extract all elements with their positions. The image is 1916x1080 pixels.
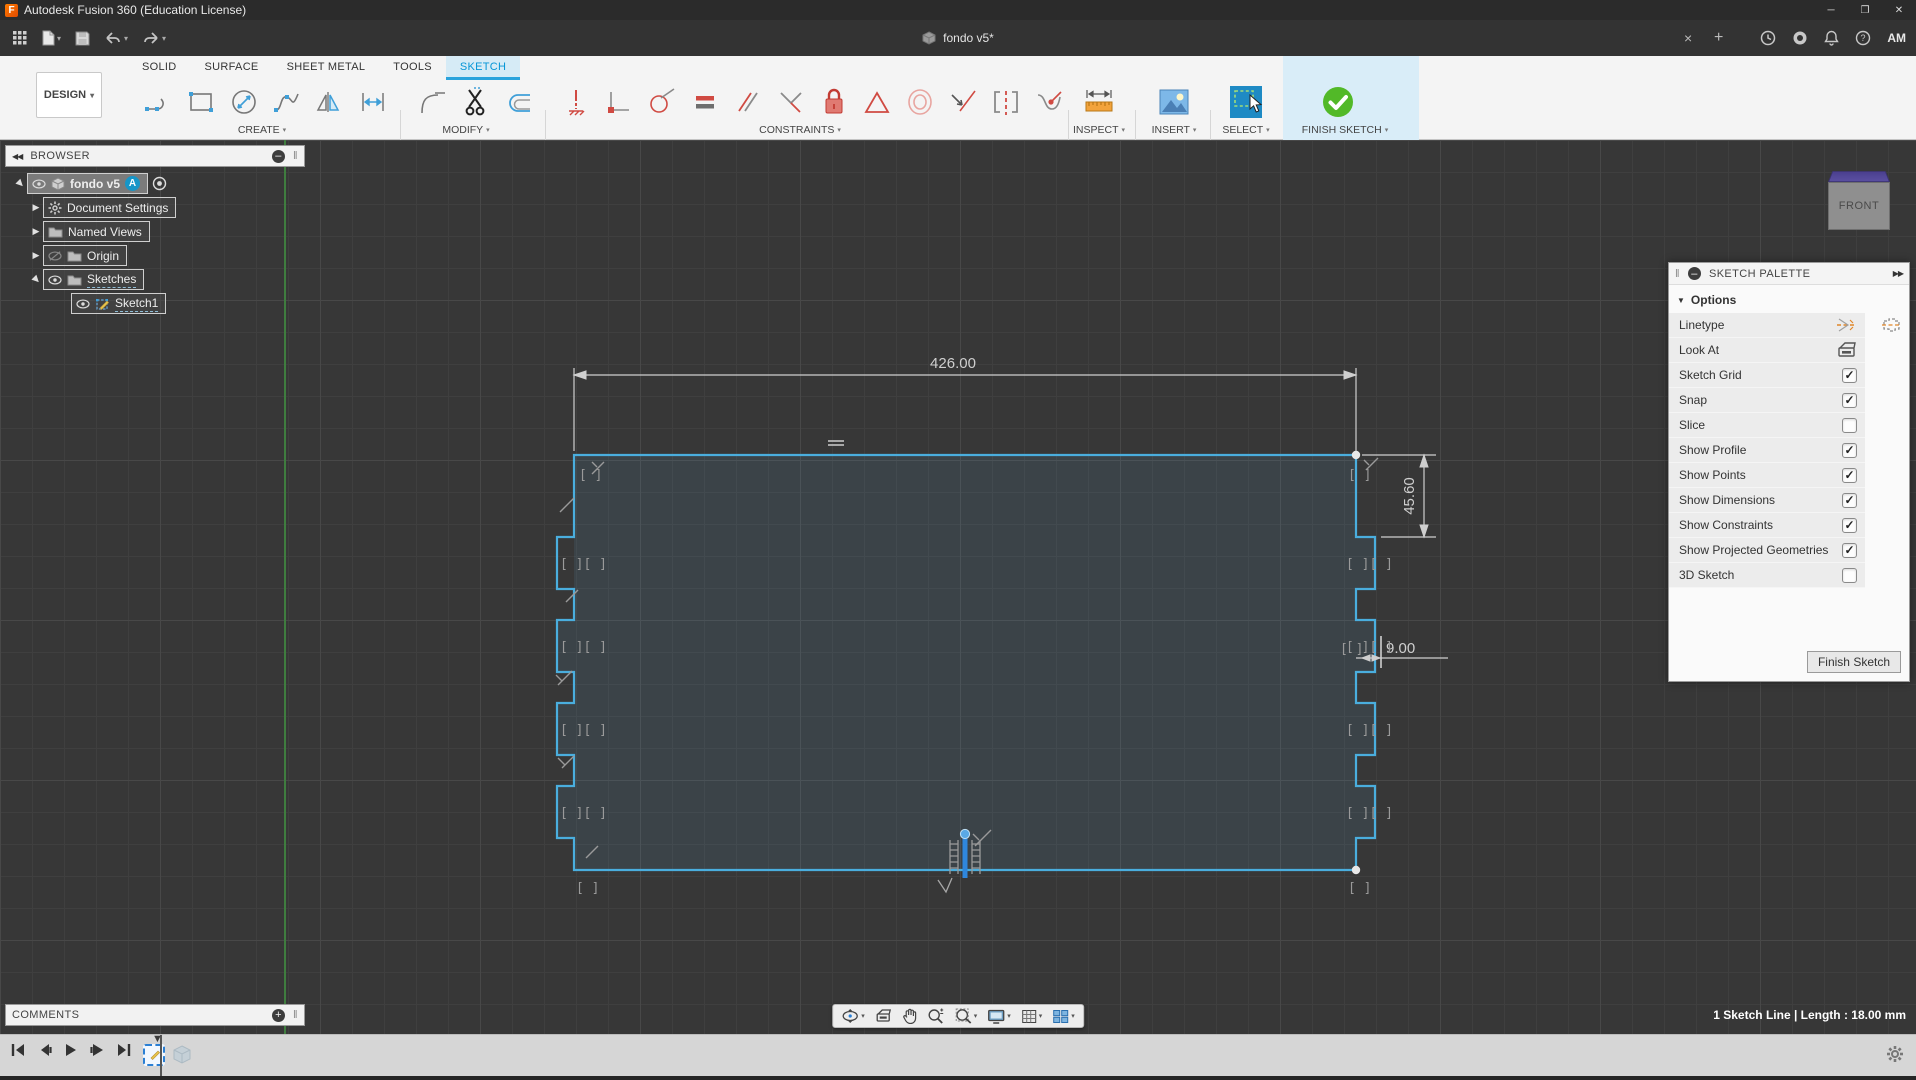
ribbon-tabs: SOLID SURFACE SHEET METAL TOOLS SKETCH <box>128 56 520 80</box>
browser-panel: ◀◀ BROWSER – ‖ ▶ fondo v5 A <box>5 145 305 317</box>
panel-grip[interactable]: ‖ <box>293 1009 298 1021</box>
tree-row-root[interactable]: ▶ fondo v5 A <box>5 173 305 194</box>
job-status-icon[interactable] <box>1760 30 1776 46</box>
show-projected-geometries-checkbox[interactable]: ✓ <box>1842 543 1857 558</box>
collapse-panel-icon[interactable]: ▶▶ <box>1893 269 1903 278</box>
tab-sheet-metal[interactable]: SHEET METAL <box>273 56 380 80</box>
palette-row-linetype: Linetype <box>1669 313 1865 338</box>
save-icon[interactable] <box>71 28 94 49</box>
expand-arrow-icon[interactable]: ▶ <box>33 226 40 237</box>
panel-display-toggle-icon[interactable]: – <box>1688 267 1701 280</box>
notification-bell-icon[interactable] <box>1824 30 1839 46</box>
tree-row-sketch1[interactable]: Sketch1 <box>5 293 305 314</box>
tree-item-label: Sketches <box>87 272 136 288</box>
dimension-height[interactable]: 45.60 <box>1362 455 1436 537</box>
document-tab-strip: ▾ ▾ ▾ fondo v5* × + <box>0 20 1916 56</box>
sketch-palette-header[interactable]: ‖ – SKETCH PALETTE ▶▶ <box>1669 263 1909 285</box>
panel-grip[interactable]: ‖ <box>293 150 298 162</box>
section-collapse-icon: ▼ <box>1677 296 1685 305</box>
bottom-edge-strip <box>0 1076 1916 1080</box>
tree-item-label: Sketch1 <box>115 296 158 312</box>
constraint-glyph[interactable]: [ ][ ] <box>560 557 607 572</box>
construction-linetype-icon[interactable] <box>1835 316 1857 334</box>
constraint-collinear-icon[interactable] <box>945 84 981 120</box>
sketch-grid-checkbox[interactable]: ✓ <box>1842 368 1857 383</box>
view-cube-front-face[interactable]: FRONT <box>1828 182 1890 230</box>
constraint-coincident-icon[interactable] <box>601 84 637 120</box>
show-profile-checkbox[interactable]: ✓ <box>1842 443 1857 458</box>
timeline-play-button[interactable] <box>64 1042 78 1058</box>
snap-checkbox[interactable]: ✓ <box>1842 393 1857 408</box>
constraint-perpendicular-icon[interactable] <box>773 84 809 120</box>
palette-row-slice: Slice ✓ <box>1669 413 1865 438</box>
constraint-glyph[interactable]: [ ][ ] <box>1346 806 1393 821</box>
document-tab-title: fondo v5* <box>943 31 994 45</box>
mirror-tool-icon[interactable] <box>312 84 348 120</box>
show-points-checkbox[interactable]: ✓ <box>1842 468 1857 483</box>
constraint-glyph[interactable]: [ ] <box>576 881 599 896</box>
document-tab[interactable]: fondo v5* <box>0 20 1916 56</box>
new-tab-icon[interactable]: + <box>1714 29 1723 47</box>
zoom-window-tool[interactable]: ▾ <box>954 1008 978 1024</box>
maximize-button[interactable]: ❐ <box>1848 0 1882 20</box>
timeline-step-forward-button[interactable] <box>90 1042 104 1058</box>
visibility-eye-icon[interactable] <box>32 178 46 190</box>
group-label-select[interactable]: SELECT▾ <box>1222 124 1269 136</box>
view-cube-top-face[interactable] <box>1828 171 1890 182</box>
tree-item-label: fondo v5 <box>70 177 120 191</box>
constraint-glyph[interactable]: [ ][ ] <box>560 806 607 821</box>
finish-sketch-icon[interactable] <box>1320 84 1356 120</box>
centerline-linetype-icon[interactable] <box>1881 316 1901 334</box>
timeline-go-to-start-button[interactable] <box>10 1042 26 1058</box>
constraint-glyph[interactable]: [ ][ ] <box>1346 723 1393 738</box>
line-tool-icon[interactable] <box>140 84 176 120</box>
palette-row-show-dimensions: Show Dimensions ✓ <box>1669 488 1865 513</box>
visibility-eye-icon[interactable] <box>76 298 90 310</box>
visibility-eye-icon[interactable] <box>48 274 62 286</box>
sketch-profile[interactable] <box>557 455 1375 870</box>
fusion-360-window: F Autodesk Fusion 360 (Education License… <box>0 0 1916 1080</box>
view-cube[interactable]: FRONT <box>1828 166 1890 236</box>
insert-image-icon[interactable] <box>1156 84 1192 120</box>
fillet-tool-icon[interactable] <box>415 84 451 120</box>
comments-panel: COMMENTS + ‖ <box>5 1004 305 1026</box>
browser-header[interactable]: ◀◀ BROWSER – ‖ <box>5 145 305 167</box>
user-avatar[interactable]: AM <box>1887 31 1906 45</box>
group-label-finish-sketch[interactable]: FINISH SKETCH▾ <box>1302 124 1388 136</box>
dropdown-caret[interactable]: ▾ <box>1071 1012 1075 1020</box>
tree-row-document-settings[interactable]: ▶ Document Settings <box>5 197 305 218</box>
sketch-point[interactable] <box>1352 451 1360 459</box>
expand-arrow-icon[interactable]: ▶ <box>33 250 40 261</box>
help-icon[interactable]: ? <box>1855 30 1871 46</box>
constraint-glyph[interactable]: [ ][ ] <box>1346 557 1393 572</box>
palette-row-show-constraints: Show Constraints ✓ <box>1669 513 1865 538</box>
show-dimensions-checkbox[interactable]: ✓ <box>1842 493 1857 508</box>
dropdown-caret[interactable]: ▾ <box>974 1012 978 1020</box>
spline-tool-icon[interactable] <box>269 84 305 120</box>
expand-arrow-icon[interactable]: ▶ <box>30 273 43 286</box>
component-cube-icon <box>51 177 65 191</box>
rectangle-tool-icon[interactable] <box>183 84 219 120</box>
tab-close-icon[interactable]: × <box>1684 30 1692 46</box>
close-button[interactable]: ✕ <box>1882 0 1916 20</box>
constraint-parallel-icon[interactable] <box>730 84 766 120</box>
tree-row-named-views[interactable]: ▶ Named Views <box>5 221 305 242</box>
show-constraints-checkbox[interactable]: ✓ <box>1842 518 1857 533</box>
file-menu-icon[interactable]: ▾ <box>38 27 65 49</box>
folder-icon <box>48 226 63 238</box>
minimize-button[interactable]: ─ <box>1814 0 1848 20</box>
hidden-eye-icon[interactable] <box>48 250 62 262</box>
undo-icon[interactable]: ▾ <box>100 28 132 48</box>
sketch-dimension-icon[interactable] <box>355 84 391 120</box>
dropdown-caret[interactable]: ▾ <box>1039 1012 1043 1020</box>
constraint-glyph[interactable]: [ ] <box>1340 642 1363 657</box>
panel-grip[interactable]: ‖ <box>1675 268 1680 280</box>
browser-title: BROWSER <box>30 150 90 162</box>
offset-tool-icon[interactable] <box>501 84 537 120</box>
constraint-curvature-icon[interactable] <box>1031 84 1067 120</box>
browser-tree: ▶ fondo v5 A ▶ Document Sett <box>5 173 305 314</box>
group-label-create[interactable]: CREATE▾ <box>238 124 286 136</box>
midpoint-mark <box>828 441 844 445</box>
app-grid-icon[interactable] <box>8 27 32 49</box>
constraint-midpoint-icon[interactable] <box>859 84 895 120</box>
palette-row-look-at: Look At <box>1669 338 1865 363</box>
redo-icon[interactable]: ▾ <box>138 28 170 48</box>
panel-display-toggle-icon[interactable]: – <box>272 150 285 163</box>
constraint-horizontal-vertical-icon[interactable] <box>558 84 594 120</box>
palette-row-snap: Snap ✓ <box>1669 388 1865 413</box>
zoom-tool[interactable] <box>927 1008 944 1024</box>
orbit-tool[interactable]: ▾ <box>841 1008 865 1024</box>
finish-sketch-button[interactable]: Finish Sketch <box>1807 651 1901 673</box>
window-title: Autodesk Fusion 360 (Education License) <box>24 3 1814 17</box>
palette-row-show-profile: Show Profile ✓ <box>1669 438 1865 463</box>
look-at-tool[interactable] <box>875 1009 892 1023</box>
look-at-icon[interactable] <box>1837 342 1857 358</box>
timeline-settings-gear-icon[interactable] <box>1886 1045 1904 1063</box>
gear-icon <box>48 201 62 215</box>
3d-sketch-checkbox[interactable]: ✓ <box>1842 568 1857 583</box>
group-label-modify[interactable]: MODIFY▾ <box>442 124 489 136</box>
sketch-point[interactable] <box>1352 866 1360 874</box>
dimension-width-label: 426.00 <box>930 355 976 372</box>
display-settings-tool[interactable]: ▾ <box>987 1009 1011 1024</box>
pan-tool[interactable] <box>902 1008 917 1024</box>
dropdown-caret[interactable]: ▾ <box>861 1012 865 1020</box>
timeline-marker-handle[interactable]: ▼ <box>152 1033 163 1045</box>
tree-item-label: Origin <box>87 249 119 263</box>
dropdown-caret[interactable]: ▾ <box>1007 1012 1011 1020</box>
palette-row-show-points: Show Points ✓ <box>1669 463 1865 488</box>
comments-title: COMMENTS <box>12 1009 79 1021</box>
viewports-tool[interactable]: ▾ <box>1052 1009 1075 1024</box>
selection-status: 1 Sketch Line | Length : 18.00 mm <box>1713 1008 1906 1022</box>
folder-icon <box>67 250 82 262</box>
tree-row-sketches[interactable]: ▶ Sketches <box>5 269 305 290</box>
dimension-width[interactable]: 426.00 <box>574 355 1356 451</box>
constraint-glyph[interactable]: [ ][ ] <box>560 723 607 738</box>
tab-tools[interactable]: TOOLS <box>379 56 446 80</box>
constraint-glyph[interactable]: [ ][ ] <box>560 640 607 655</box>
constraint-concentric-icon[interactable] <box>902 84 938 120</box>
mouse-cursor <box>1249 94 1263 114</box>
group-label-constraints[interactable]: CONSTRAINTS▾ <box>759 124 841 136</box>
constraint-glyph[interactable]: [ ] <box>1348 881 1371 896</box>
constraint-tangent-icon[interactable] <box>644 84 680 120</box>
dimension-height-label: 45.60 <box>1401 477 1418 515</box>
expand-arrow-icon[interactable]: ▶ <box>33 202 40 213</box>
document-cube-icon <box>922 31 936 45</box>
options-section-header[interactable]: ▼ Options <box>1669 285 1909 313</box>
constraint-symmetry-icon[interactable] <box>988 84 1024 120</box>
sketch-palette-title: SKETCH PALETTE <box>1709 268 1810 280</box>
constraint-equal-icon[interactable] <box>687 84 723 120</box>
add-comment-icon[interactable]: + <box>272 1009 285 1022</box>
navigation-bar: ▾ ▾ ▾ ▾ <box>832 1004 1084 1028</box>
tab-sketch[interactable]: SKETCH <box>446 56 520 80</box>
autodesk-badge-icon: A <box>125 176 140 191</box>
slice-checkbox[interactable]: ✓ <box>1842 418 1857 433</box>
palette-row-show-projected: Show Projected Geometries ✓ <box>1669 538 1865 563</box>
comments-header[interactable]: COMMENTS + ‖ <box>5 1004 305 1026</box>
trim-tool-icon[interactable] <box>458 84 494 120</box>
expand-arrow-icon[interactable]: ▶ <box>14 177 27 190</box>
tree-item-label: Named Views <box>68 225 142 239</box>
model-canvas[interactable]: 426.00 45.60 9.00 <box>0 140 1916 1034</box>
grid-settings-tool[interactable]: ▾ <box>1021 1009 1043 1024</box>
palette-row-sketch-grid: Sketch Grid ✓ <box>1669 363 1865 388</box>
sketch-icon <box>95 297 110 311</box>
collapse-panel-icon[interactable]: ◀◀ <box>12 152 22 161</box>
constraint-glyph[interactable]: [ ] <box>1348 468 1371 483</box>
title-bar: F Autodesk Fusion 360 (Education License… <box>0 0 1916 20</box>
constraint-fix-icon[interactable] <box>816 84 852 120</box>
group-label-inspect[interactable]: INSPECT▾ <box>1073 124 1125 136</box>
tree-row-origin[interactable]: ▶ Origin <box>5 245 305 266</box>
tab-surface[interactable]: SURFACE <box>191 56 273 80</box>
timeline-bar: ▼ <box>0 1034 1916 1076</box>
sketch-palette-panel: ‖ – SKETCH PALETTE ▶▶ ▼ Options Linetype <box>1668 262 1910 682</box>
folder-icon <box>67 274 82 286</box>
activate-component-radio-icon[interactable] <box>152 176 167 191</box>
ribbon-toolbar: SOLID SURFACE SHEET METAL TOOLS SKETCH D… <box>0 56 1916 140</box>
svg-text:?: ? <box>1861 33 1866 43</box>
measure-tool-icon[interactable] <box>1081 84 1117 120</box>
tree-item-label: Document Settings <box>67 201 168 215</box>
timeline-pending-feature <box>172 1044 192 1066</box>
constraint-glyph[interactable]: [ ] <box>579 468 602 483</box>
circle-tool-icon[interactable] <box>226 84 262 120</box>
timeline-step-back-button[interactable] <box>38 1042 52 1058</box>
timeline-go-to-end-button[interactable] <box>116 1042 132 1058</box>
palette-row-3d-sketch: 3D Sketch ✓ <box>1669 563 1865 588</box>
fusion-logo-icon: F <box>5 4 18 17</box>
group-label-insert[interactable]: INSERT▾ <box>1152 124 1197 136</box>
tab-solid[interactable]: SOLID <box>128 56 191 80</box>
extensions-icon[interactable] <box>1792 30 1808 46</box>
